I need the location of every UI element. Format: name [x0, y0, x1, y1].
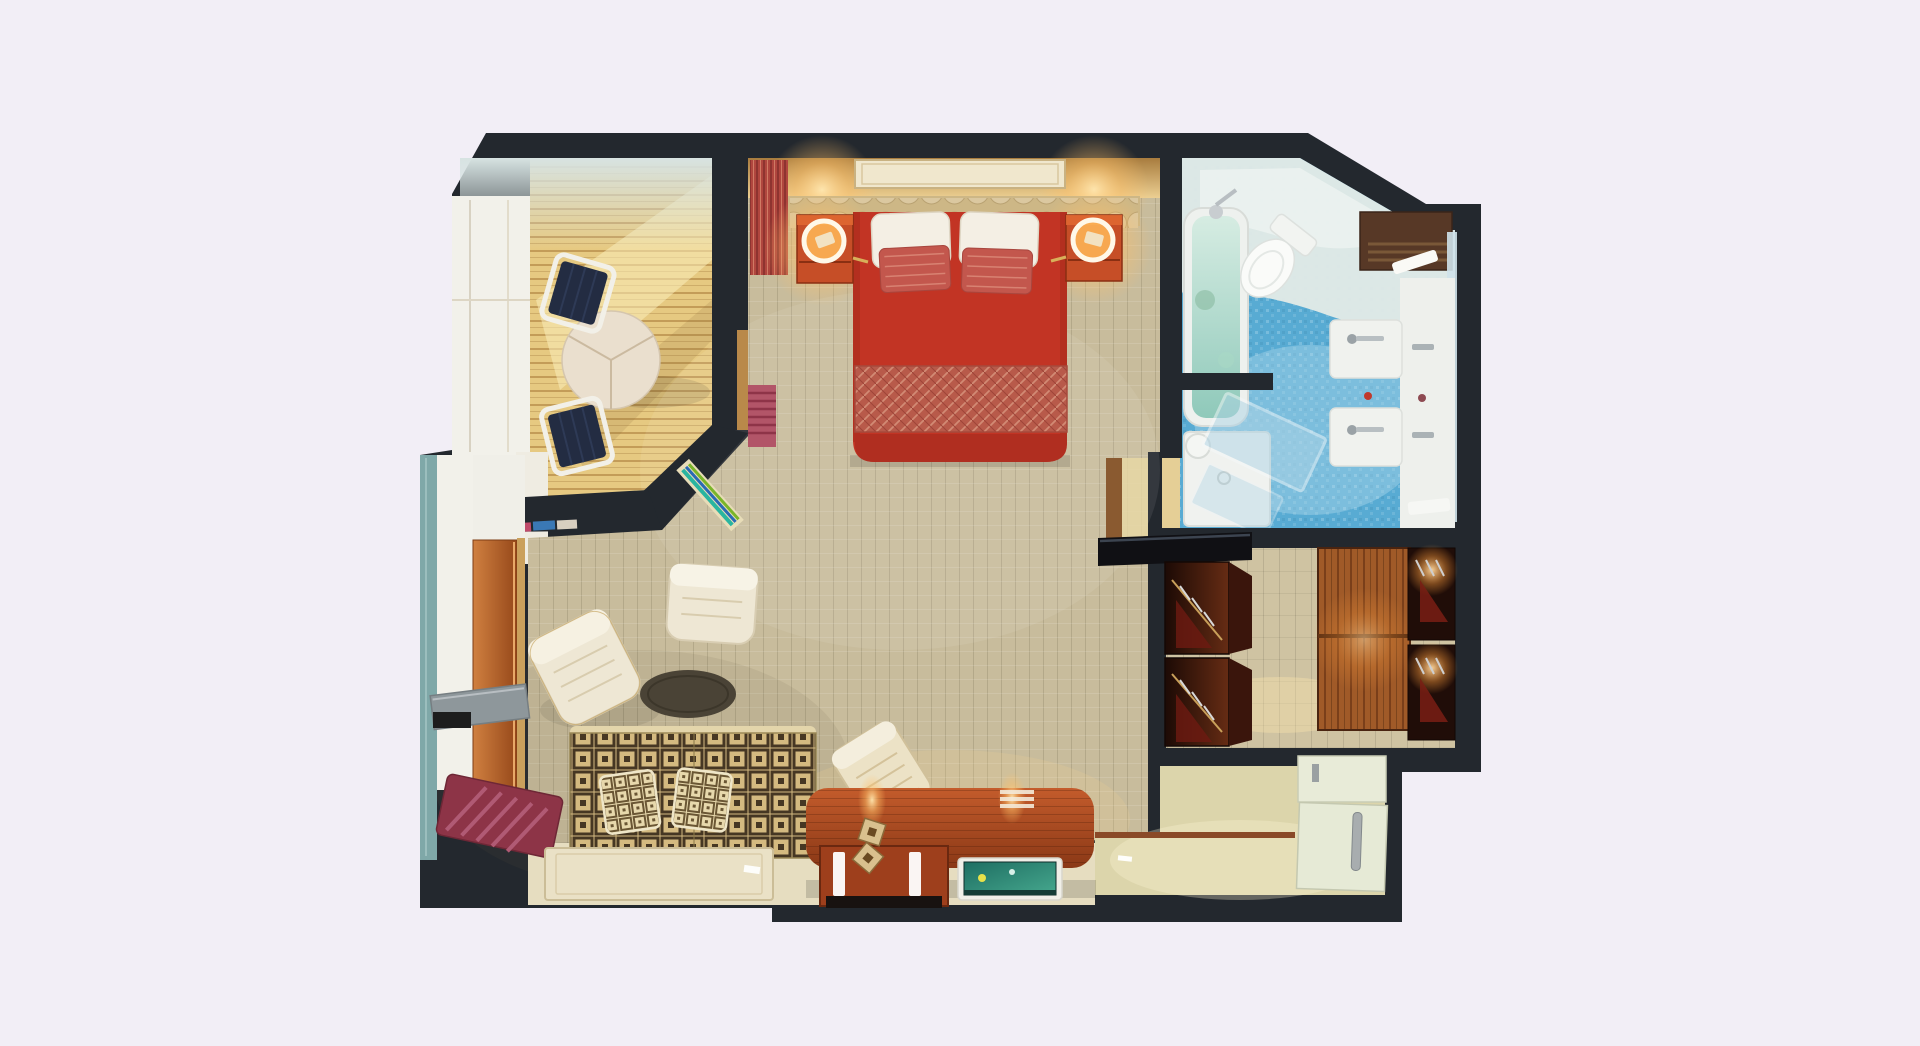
soap-item: [1418, 394, 1426, 402]
oval-rug: [640, 670, 736, 718]
bed-foot-fold: [855, 434, 1067, 462]
small-handle: [1312, 764, 1319, 782]
tv-image-blob: [1009, 869, 1015, 875]
vent-slats: [1000, 790, 1034, 808]
led-strip: [909, 852, 921, 896]
red-pillow-left: [879, 245, 951, 293]
wardrobe-spotlit-bottom: [1406, 642, 1458, 740]
door-frame-wood: [1106, 458, 1122, 546]
desk-console: [806, 772, 1096, 908]
floor-plan-render: [0, 0, 1920, 1046]
door-long-handle: [1351, 812, 1362, 870]
coffee-table-rim: [826, 896, 942, 908]
upper-door-panel: [1298, 756, 1386, 802]
floor-mat: [545, 848, 773, 900]
faucet-spout: [1356, 336, 1384, 341]
sofa-cushion-1: [599, 770, 661, 835]
led-strip: [833, 852, 845, 896]
desk-light-reflection: [858, 774, 886, 826]
entry-door: [1296, 802, 1387, 891]
glass-panel: [420, 455, 437, 860]
wall-mixer: [1412, 344, 1434, 350]
wood-entry-door-leaf: [473, 540, 517, 802]
door-highlight: [1312, 588, 1416, 692]
closet-left-wall: [1148, 548, 1166, 748]
wardrobe-spotlit-top: [1406, 544, 1458, 640]
water-reflection: [1218, 352, 1234, 368]
wardrobe-open-top: [1165, 562, 1252, 654]
white-wall-strip: [437, 455, 473, 790]
tub-shower-wall-stub: [1160, 373, 1273, 390]
bathroom: [1160, 158, 1457, 538]
sink-right: [1330, 408, 1402, 466]
shelf-bracket: [433, 712, 471, 728]
floor-plan-svg: [0, 0, 1920, 1046]
sofa-cushion-2: [672, 768, 733, 832]
water-reflection: [1195, 290, 1215, 310]
sink-left: [1330, 320, 1402, 378]
bedroom-bath-wall: [1160, 158, 1182, 458]
flat-tv: [958, 858, 1062, 900]
patterned-sofa: [570, 726, 816, 858]
vanity-counter: [1400, 278, 1455, 528]
sliding-wood-doors: [1312, 548, 1416, 730]
wood-door-frame: [737, 330, 748, 430]
tub-faucet: [1209, 205, 1223, 219]
tv-image-blob: [978, 874, 986, 882]
tv-image-shore: [964, 890, 1056, 895]
doorway-floor-glow: [1122, 458, 1148, 546]
sink-faucet: [1347, 425, 1357, 435]
faucet-spout: [1356, 427, 1384, 432]
wardrobe-open-bottom: [1165, 658, 1252, 746]
patterned-blanket: [855, 366, 1067, 432]
sink-faucet: [1347, 334, 1357, 344]
bathroom-door-opening: [1162, 458, 1180, 528]
wall-mixer: [1412, 432, 1434, 438]
door-frame-strip: [517, 538, 525, 804]
window-wall: [452, 196, 530, 456]
red-pillow-right: [961, 248, 1032, 294]
soap-item: [1364, 392, 1372, 400]
wall-above-door: [473, 455, 525, 543]
wood-threshold: [1095, 832, 1295, 838]
armchair-2: [665, 563, 758, 645]
